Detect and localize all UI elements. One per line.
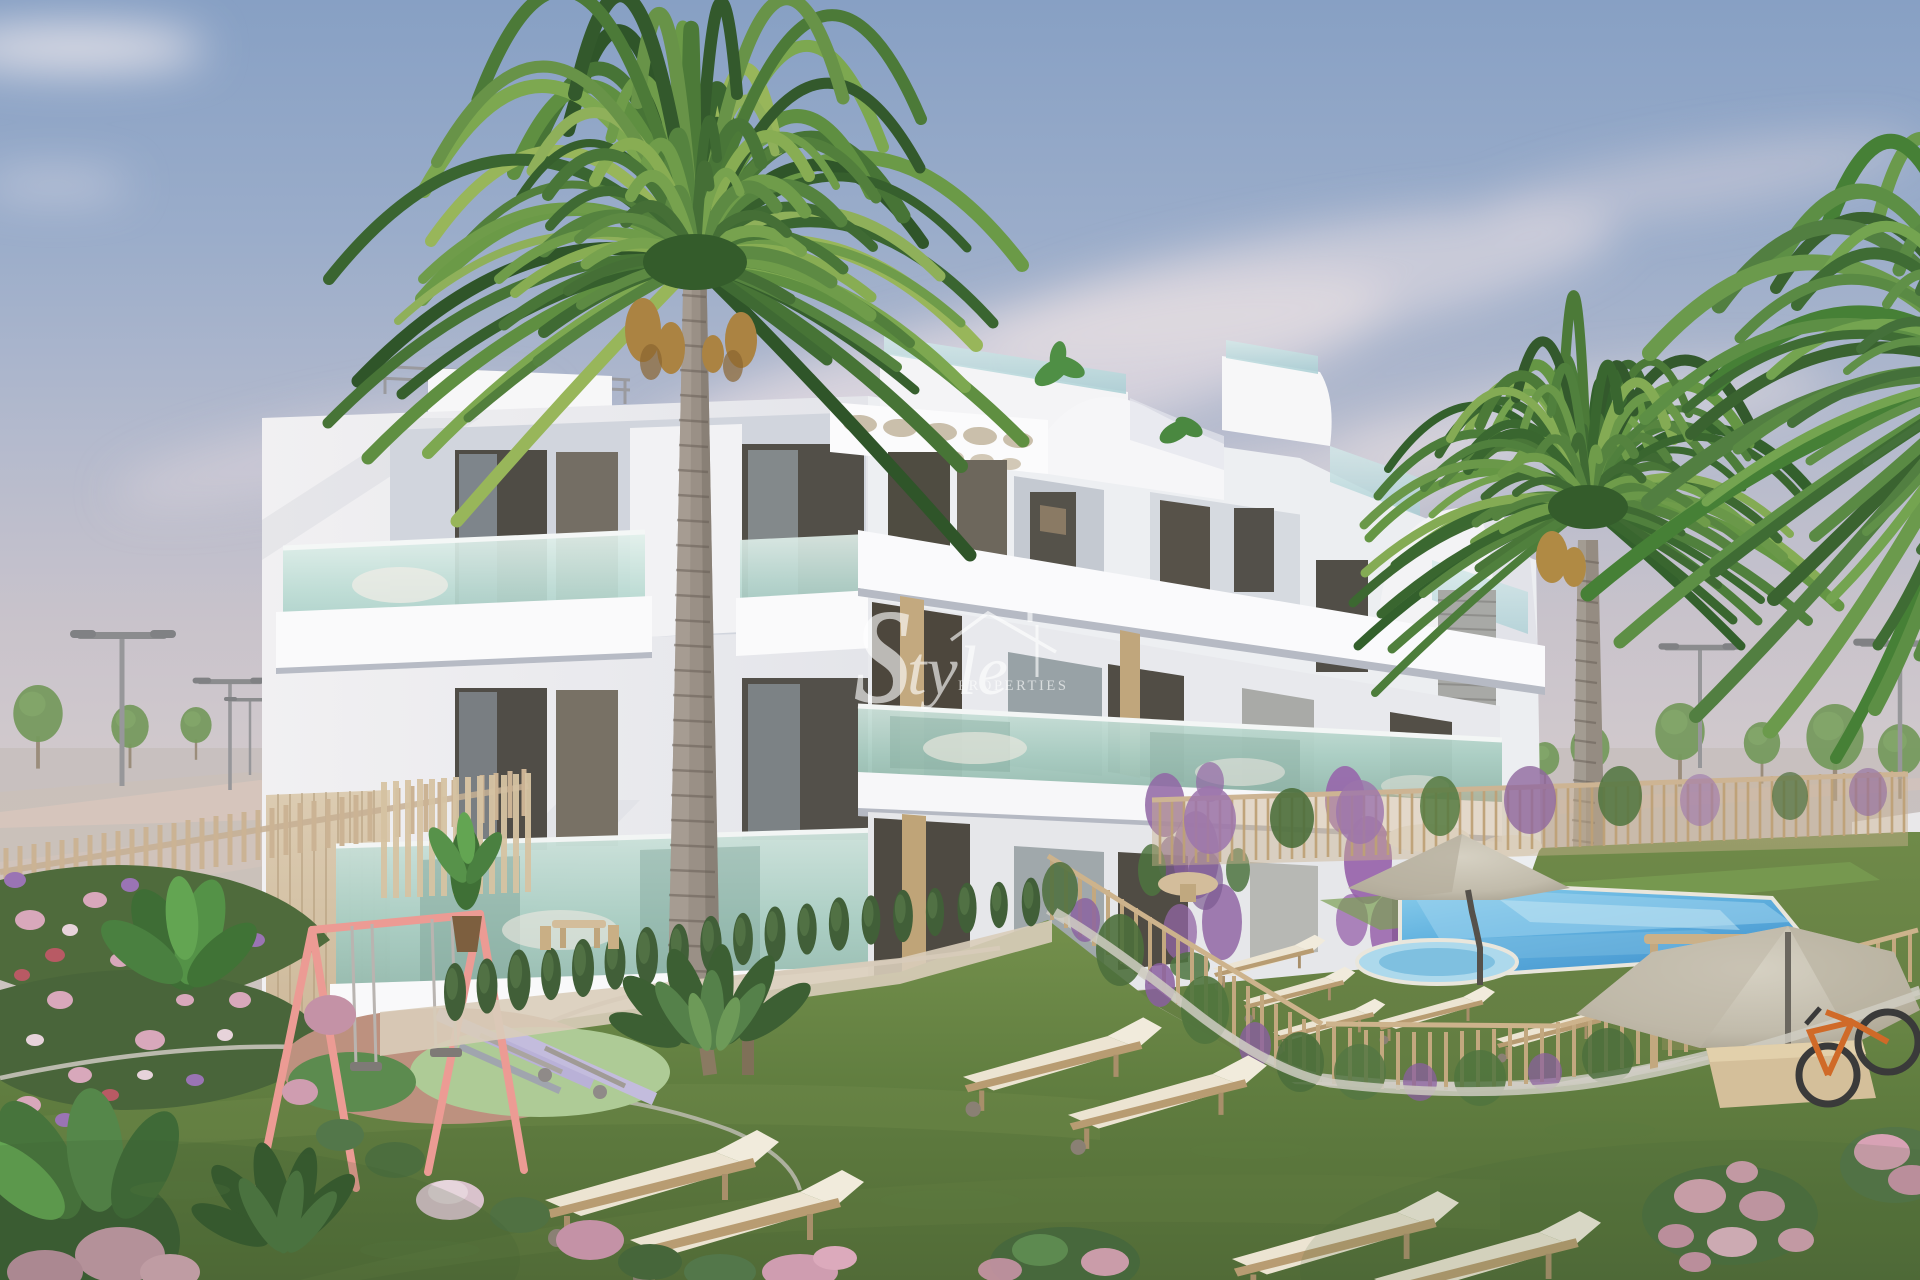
svg-text:tyle: tyle — [907, 633, 1008, 710]
svg-text:S: S — [853, 581, 914, 732]
svg-text:PROPERTIES: PROPERTIES — [958, 678, 1069, 694]
